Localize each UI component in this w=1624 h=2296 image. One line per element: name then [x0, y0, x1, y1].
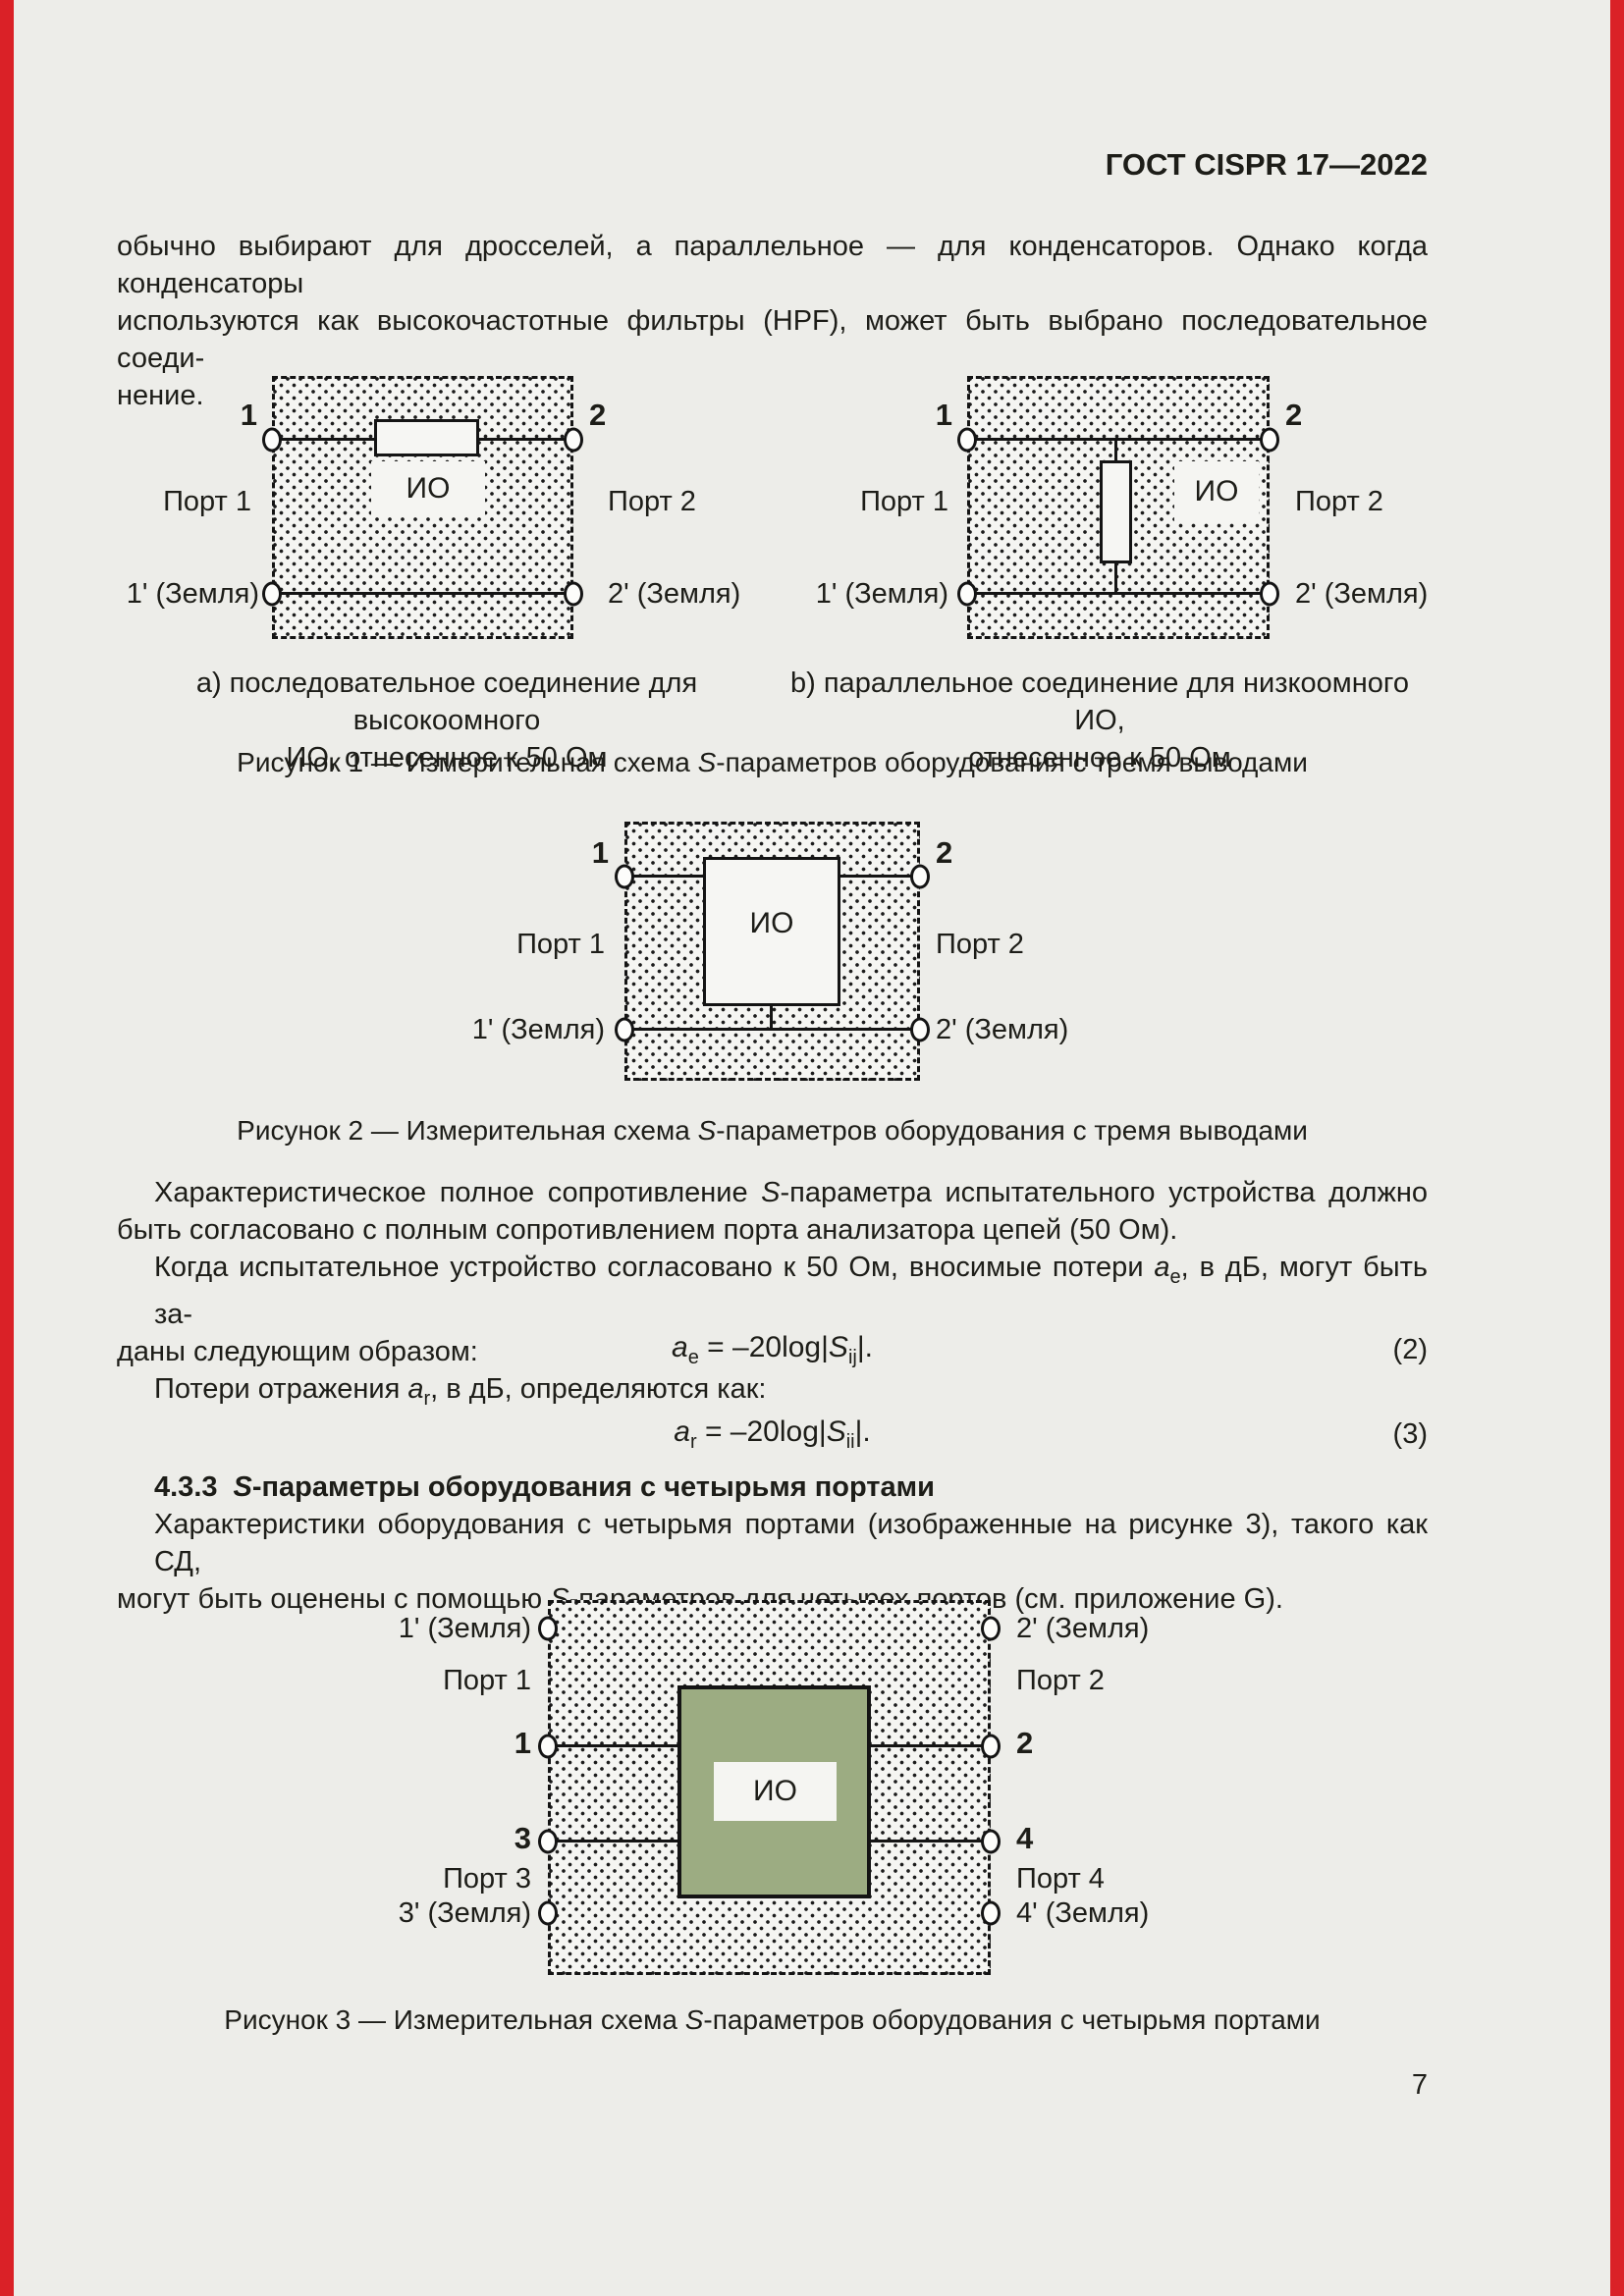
- fig2-terminal-2: [910, 865, 930, 889]
- fig1a-series-element: [374, 419, 479, 456]
- para-impedance-line1: Характеристическое полное сопротивление …: [117, 1174, 1428, 1211]
- fig3-port3-label: Порт 3: [386, 1860, 531, 1897]
- fig1a-terminal-2prime: [564, 582, 583, 607]
- fig1a-caption-line1: a) последовательное соединение для высок…: [133, 665, 761, 739]
- fig1b-wire-top: [967, 438, 1270, 441]
- formula2-s-sub: ij: [848, 1347, 857, 1368]
- fig1b-ground1-label: 1' (Земля): [774, 575, 948, 613]
- para2-pre: Когда испытательное устройство согласова…: [154, 1252, 1154, 1283]
- fig1a-terminal-2: [564, 428, 583, 453]
- section-title-s: S: [234, 1471, 252, 1503]
- fig1a-device-label-patch: ИО: [371, 461, 485, 515]
- fig1a-ground1-label: 1' (Земля): [84, 575, 259, 613]
- fig2-device-label: ИО: [703, 905, 840, 942]
- fig3-terminal-4: [981, 1830, 1001, 1854]
- fig2-terminal-2prime: [910, 1018, 930, 1042]
- formula2-end: |.: [857, 1331, 873, 1363]
- fig3-port1-label: Порт 1: [386, 1662, 531, 1699]
- document-page: ГОСТ CISPR 17—2022 обычно выбирают для д…: [0, 0, 1624, 2296]
- fig2-caption-pre: Рисунок 2 — Измерительная схема: [237, 1115, 697, 1146]
- fig3-device-label-patch: ИО: [714, 1762, 837, 1821]
- para-four-ports-line1: Характеристики оборудования с четырьмя п…: [117, 1506, 1428, 1580]
- formula2-mid: = –20log|: [699, 1331, 829, 1363]
- right-edge-red-bar: [1610, 0, 1624, 2296]
- page-header: ГОСТ CISPR 17—2022: [117, 147, 1428, 183]
- fig2-ground2-label: 2' (Земля): [936, 1011, 1068, 1048]
- fig1b-port2-label: Порт 2: [1295, 483, 1383, 520]
- formula3-s-sub: ii: [846, 1431, 855, 1453]
- fig2-caption-s: S: [698, 1115, 717, 1146]
- fig3-pin-3: 3: [453, 1820, 531, 1857]
- page-number: 7: [1280, 2069, 1428, 2102]
- fig3-device-label: ИО: [753, 1775, 797, 1808]
- fig3-terminal-4prime: [981, 1901, 1001, 1926]
- formula2-var-sub: e: [688, 1347, 699, 1368]
- fig2-port1-label: Порт 1: [460, 926, 605, 963]
- para1-s: S: [761, 1177, 780, 1208]
- para3-post: , в дБ, определяются как:: [430, 1373, 766, 1405]
- formula-3: ar = –20log|Sii|.: [117, 1414, 1428, 1461]
- fig1b-pin-2: 2: [1285, 397, 1302, 434]
- fig3-caption-post: -параметров оборудования с четырьмя порт…: [703, 2004, 1320, 2035]
- fig2-caption-post: -параметров оборудования с тремя выводам…: [716, 1115, 1308, 1146]
- para1-pre: Характеристическое полное сопротивление: [154, 1177, 761, 1208]
- fig1a-wire-top-left: [272, 438, 376, 441]
- fig1b-device-label-patch: ИО: [1174, 461, 1259, 522]
- intro-line2: используются как высокочастотные фильтры…: [117, 302, 1428, 377]
- fig1a-port2-label: Порт 2: [608, 483, 696, 520]
- formula3-s: S: [827, 1415, 846, 1448]
- fig2-wire-top-left: [624, 875, 703, 878]
- fig3-port4-label: Порт 4: [1016, 1860, 1105, 1897]
- fig3-pin-2: 2: [1016, 1725, 1033, 1762]
- fig1a-terminal-1: [262, 428, 282, 453]
- fig3-pin-4: 4: [1016, 1820, 1033, 1857]
- fig2-port2-label: Порт 2: [936, 926, 1024, 963]
- para-impedance: Характеристическое полное сопротивление …: [117, 1174, 1428, 1249]
- fig1b-ground2-label: 2' (Земля): [1295, 575, 1428, 613]
- fig1b-terminal-1prime: [957, 582, 977, 607]
- para-insertion-loss-line1: Когда испытательное устройство согласова…: [117, 1249, 1428, 1333]
- fig3-caption-pre: Рисунок 3 — Измерительная схема: [224, 2004, 684, 2035]
- formula3-var: a: [674, 1415, 690, 1448]
- fig1b-terminal-2prime: [1260, 582, 1279, 607]
- fig2-wire-bottom: [624, 1028, 920, 1031]
- fig3-wire-2: [869, 1744, 991, 1747]
- section-heading-line: 4.3.3S-параметры оборудования с четырьмя…: [117, 1468, 1428, 1506]
- fig1b-port1-label: Порт 1: [803, 483, 948, 520]
- fig1-caption-pre: Рисунок 1 — Измерительная схема: [237, 747, 697, 777]
- fig3-ground4-label: 4' (Земля): [1016, 1895, 1149, 1932]
- formula-2-number: (2): [1280, 1331, 1428, 1368]
- fig1b-stub-top: [1114, 440, 1117, 462]
- formula2-s: S: [829, 1331, 848, 1363]
- fig3-port2-label: Порт 2: [1016, 1662, 1105, 1699]
- fig1-caption-post: -параметров оборудования с тремя выводам…: [716, 747, 1308, 777]
- para-reflection-loss: Потери отражения ar, в дБ, определяются …: [117, 1370, 1428, 1417]
- fig1a-wire-bottom: [272, 592, 573, 595]
- fig3-wire-4: [869, 1840, 991, 1842]
- fig3-terminal-2: [981, 1735, 1001, 1759]
- fig1a-wire-top-right: [477, 438, 573, 441]
- para2-var: a: [1154, 1252, 1169, 1283]
- intro-line1: обычно выбирают для дросселей, а паралле…: [117, 228, 1428, 302]
- fig1b-stub-bottom: [1114, 561, 1117, 594]
- formula3-mid: = –20log|: [697, 1415, 827, 1448]
- fig1b-device-label: ИО: [1195, 475, 1239, 508]
- fig2-stub-bottom: [770, 1006, 773, 1030]
- fig2-terminal-1: [615, 865, 634, 889]
- fig3-terminal-3prime: [538, 1901, 558, 1926]
- para-impedance-line2: быть согласовано с полным сопротивлением…: [117, 1211, 1428, 1249]
- fig1b-caption-line1: b) параллельное соединение для низкоомно…: [785, 665, 1414, 739]
- fig1b-terminal-2: [1260, 428, 1279, 453]
- fig1b-shunt-element: [1100, 460, 1132, 563]
- section-heading-433: 4.3.3S-параметры оборудования с четырьмя…: [117, 1468, 1428, 1506]
- para2-sub: e: [1170, 1266, 1181, 1288]
- section-title-rest: -параметры оборудования с четырьмя порта…: [252, 1471, 935, 1503]
- fig2-pin-1: 1: [530, 834, 609, 872]
- fig2-pin-2: 2: [936, 834, 952, 872]
- fig3-wire-1: [548, 1744, 677, 1747]
- section-number: 4.3.3: [154, 1471, 218, 1503]
- para1-post: -параметра испытательного устройства дол…: [781, 1177, 1428, 1208]
- fig1-caption-s: S: [698, 747, 717, 777]
- fig2-ground1-label: 1' (Земля): [430, 1011, 605, 1048]
- fig3-pin-1: 1: [453, 1725, 531, 1762]
- fig2-caption: Рисунок 2 — Измерительная схема S-параме…: [117, 1112, 1428, 1149]
- formula3-end: |.: [855, 1415, 871, 1448]
- formula-2: ae = –20log|Sij|.: [117, 1329, 1428, 1376]
- formula3-var-sub: r: [690, 1431, 697, 1453]
- fig1-caption: Рисунок 1 — Измерительная схема S-параме…: [117, 744, 1428, 781]
- fig1a-pin-1: 1: [179, 397, 257, 434]
- fig2-wire-top-right: [839, 875, 920, 878]
- fig3-caption-s: S: [685, 2004, 704, 2035]
- para3-var: a: [407, 1373, 423, 1405]
- fig1a-pin-2: 2: [589, 397, 606, 434]
- formula-3-number: (3): [1280, 1415, 1428, 1453]
- left-edge-red-bar: [0, 0, 14, 2296]
- fig1a-ground2-label: 2' (Земля): [608, 575, 740, 613]
- para3-pre: Потери отражения: [154, 1373, 407, 1405]
- fig3-caption: Рисунок 3 — Измерительная схема S-параме…: [117, 2002, 1428, 2039]
- para-reflection-loss-line: Потери отражения ar, в дБ, определяются …: [117, 1370, 1428, 1417]
- fig3-wire-3: [548, 1840, 677, 1842]
- formula2-var: a: [672, 1331, 688, 1363]
- fig2-terminal-1prime: [615, 1018, 634, 1042]
- fig1b-pin-1: 1: [874, 397, 952, 434]
- fig3-ground3-label: 3' (Земля): [356, 1895, 531, 1932]
- fig1b-terminal-1: [957, 428, 977, 453]
- fig3-terminal-1: [538, 1735, 558, 1759]
- fig1b-wire-bottom: [967, 592, 1270, 595]
- fig1a-terminal-1prime: [262, 582, 282, 607]
- fig3-terminal-1prime: [538, 1617, 558, 1641]
- fig3-terminal-3: [538, 1830, 558, 1854]
- fig3-terminal-2prime: [981, 1617, 1001, 1641]
- fig3-ground2-label: 2' (Земля): [1016, 1610, 1149, 1647]
- fig3-ground1-label: 1' (Земля): [356, 1610, 531, 1647]
- fig1a-port1-label: Порт 1: [106, 483, 251, 520]
- fig1a-device-label: ИО: [406, 472, 451, 506]
